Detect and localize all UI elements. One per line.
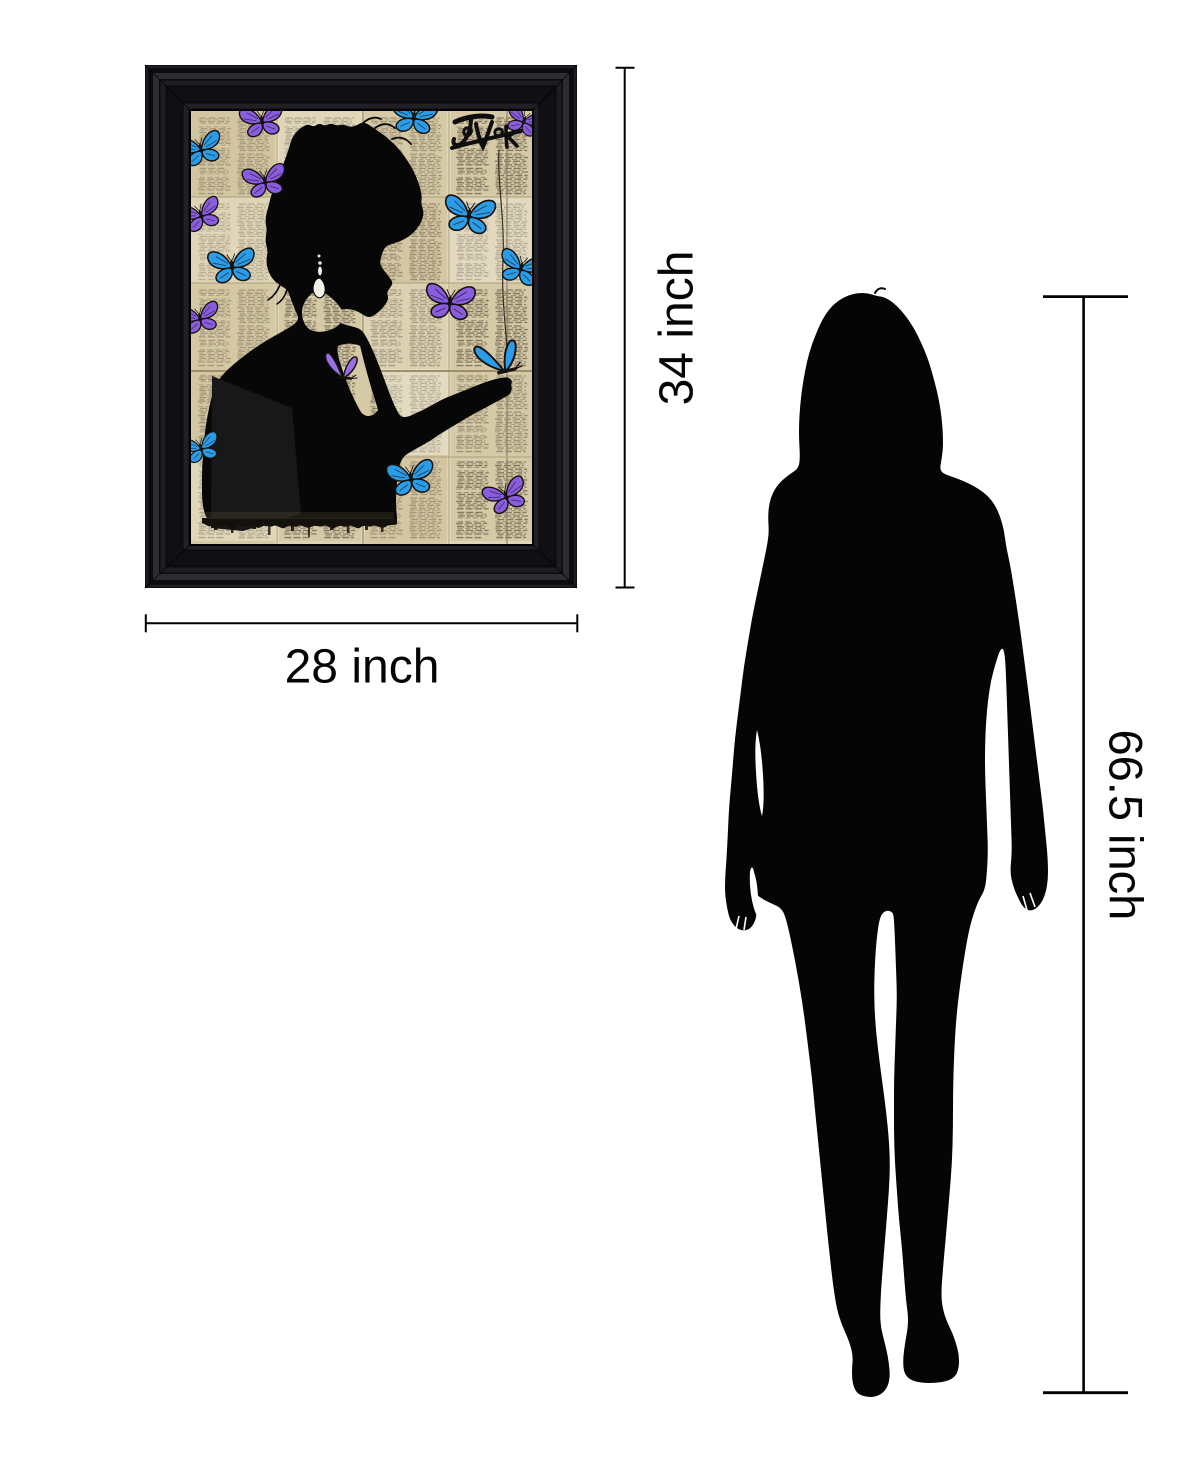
svg-text:66.5 inch: 66.5 inch — [1099, 730, 1152, 921]
svg-text:34 inch: 34 inch — [651, 251, 704, 406]
svg-text:28 inch: 28 inch — [285, 641, 440, 694]
